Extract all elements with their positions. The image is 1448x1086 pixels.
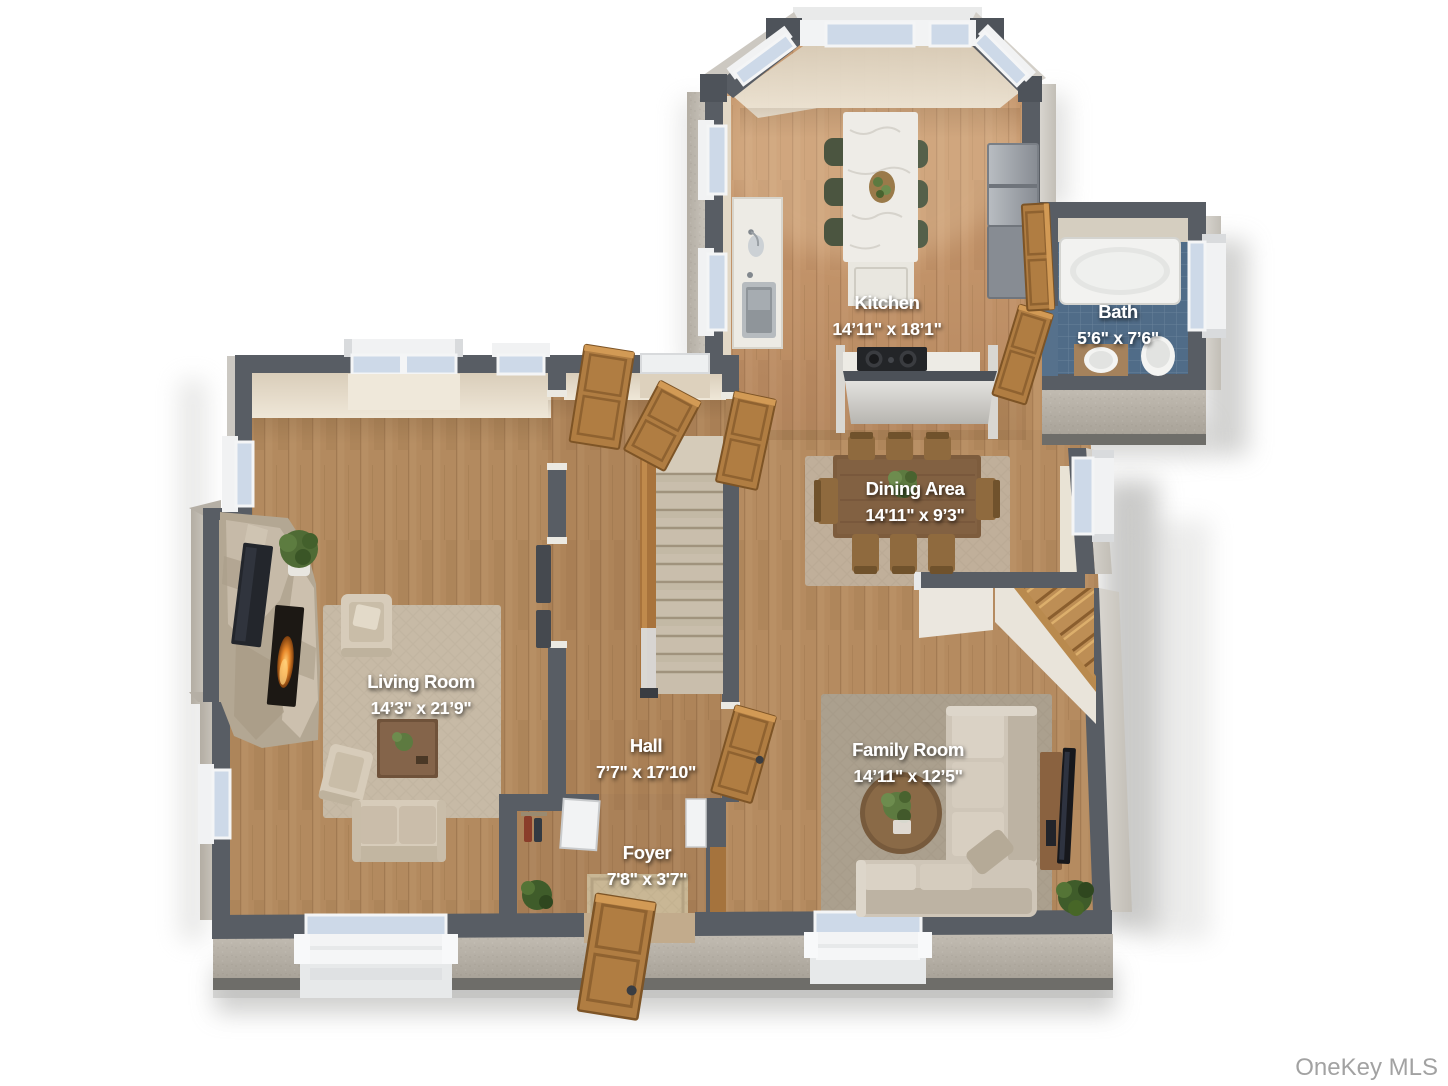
svg-text:Dining Area: Dining Area xyxy=(866,478,966,499)
svg-text:Kitchen: Kitchen xyxy=(854,292,919,313)
svg-text:OneKey MLS: OneKey MLS xyxy=(1295,1054,1438,1081)
svg-text:14’3" x 21’9": 14’3" x 21’9" xyxy=(371,698,472,718)
svg-text:14'11" x 9’3": 14'11" x 9’3" xyxy=(865,505,964,525)
svg-text:7’7" x 17'10": 7’7" x 17'10" xyxy=(596,762,696,782)
svg-text:5’6" x 7’6": 5’6" x 7’6" xyxy=(1077,328,1159,348)
svg-text:Foyer: Foyer xyxy=(623,842,672,863)
svg-text:7'8" x 3'7": 7'8" x 3'7" xyxy=(607,869,687,889)
svg-text:Bath: Bath xyxy=(1098,301,1138,322)
svg-text:Family Room: Family Room xyxy=(852,739,964,760)
svg-text:Hall: Hall xyxy=(630,735,662,756)
svg-text:14’11" x 12’5": 14’11" x 12’5" xyxy=(853,766,962,786)
svg-text:14’11" x 18’1": 14’11" x 18’1" xyxy=(832,319,941,339)
svg-text:Living Room: Living Room xyxy=(367,671,475,692)
